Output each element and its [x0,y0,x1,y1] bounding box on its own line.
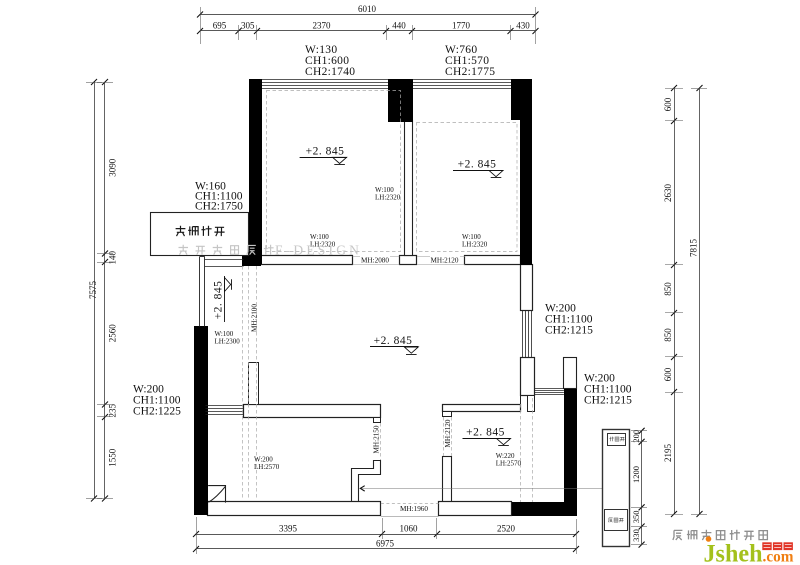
svg-text:3395: 3395 [279,524,298,534]
svg-text:1770: 1770 [452,21,471,31]
svg-text:430: 430 [516,21,530,31]
svg-text:600: 600 [663,97,673,111]
svg-text:+2. 845: +2. 845 [213,281,225,320]
svg-text:LH:2320: LH:2320 [462,241,488,249]
svg-text:7575: 7575 [88,281,98,300]
svg-text:1060: 1060 [400,524,419,534]
svg-text:+2. 845: +2. 845 [458,159,497,171]
svg-text:LH:2570: LH:2570 [496,460,522,468]
svg-text:850: 850 [663,328,673,342]
svg-text:LH:2320: LH:2320 [375,194,401,202]
svg-text:1550: 1550 [108,448,118,467]
svg-text:695: 695 [213,21,227,31]
svg-text:Jsheh: Jsheh [704,541,763,565]
svg-text:F-DESIGN: F-DESIGN [275,243,362,258]
svg-text:MH:1960: MH:1960 [400,505,428,513]
svg-text:CH2:1215: CH2:1215 [545,325,593,337]
svg-text:2630: 2630 [663,184,673,203]
svg-text:2560: 2560 [108,324,118,343]
svg-text:MH:2080: MH:2080 [361,256,389,264]
svg-text:CH2:1225: CH2:1225 [133,406,181,418]
svg-text:7815: 7815 [689,239,699,258]
svg-text:MH:2120: MH:2120 [444,419,452,447]
svg-text:+2. 845: +2. 845 [306,146,345,158]
svg-text:2370: 2370 [313,21,332,31]
svg-text:CH2:1750: CH2:1750 [195,201,243,213]
svg-text:MH:2120: MH:2120 [431,256,459,264]
svg-text:2195: 2195 [663,444,673,463]
svg-text:6010: 6010 [358,4,377,14]
svg-text:440: 440 [392,21,406,31]
svg-text:MH:2150: MH:2150 [373,425,381,453]
svg-text:.com: .com [763,549,795,565]
svg-text:2520: 2520 [497,524,516,534]
svg-text:350: 350 [631,511,641,524]
svg-text:+2. 845: +2. 845 [374,335,413,347]
svg-text:330: 330 [631,529,641,542]
svg-text:305: 305 [241,21,255,31]
svg-text:CH2:1740: CH2:1740 [305,66,355,78]
svg-text:LH:2570: LH:2570 [254,463,280,471]
svg-text:MH:2100: MH:2100 [251,304,259,332]
svg-text:CH2:1775: CH2:1775 [445,66,495,78]
svg-text:1200: 1200 [631,466,641,483]
svg-text:850: 850 [663,282,673,296]
svg-text:600: 600 [663,367,673,381]
svg-text:235: 235 [108,404,118,418]
svg-text:CH2:1215: CH2:1215 [584,395,632,407]
svg-text:3090: 3090 [108,158,118,177]
svg-text:+2. 845: +2. 845 [466,427,505,439]
svg-text:LH:2300: LH:2300 [215,338,241,346]
svg-text:6975: 6975 [376,539,395,549]
svg-text:200: 200 [631,430,641,443]
